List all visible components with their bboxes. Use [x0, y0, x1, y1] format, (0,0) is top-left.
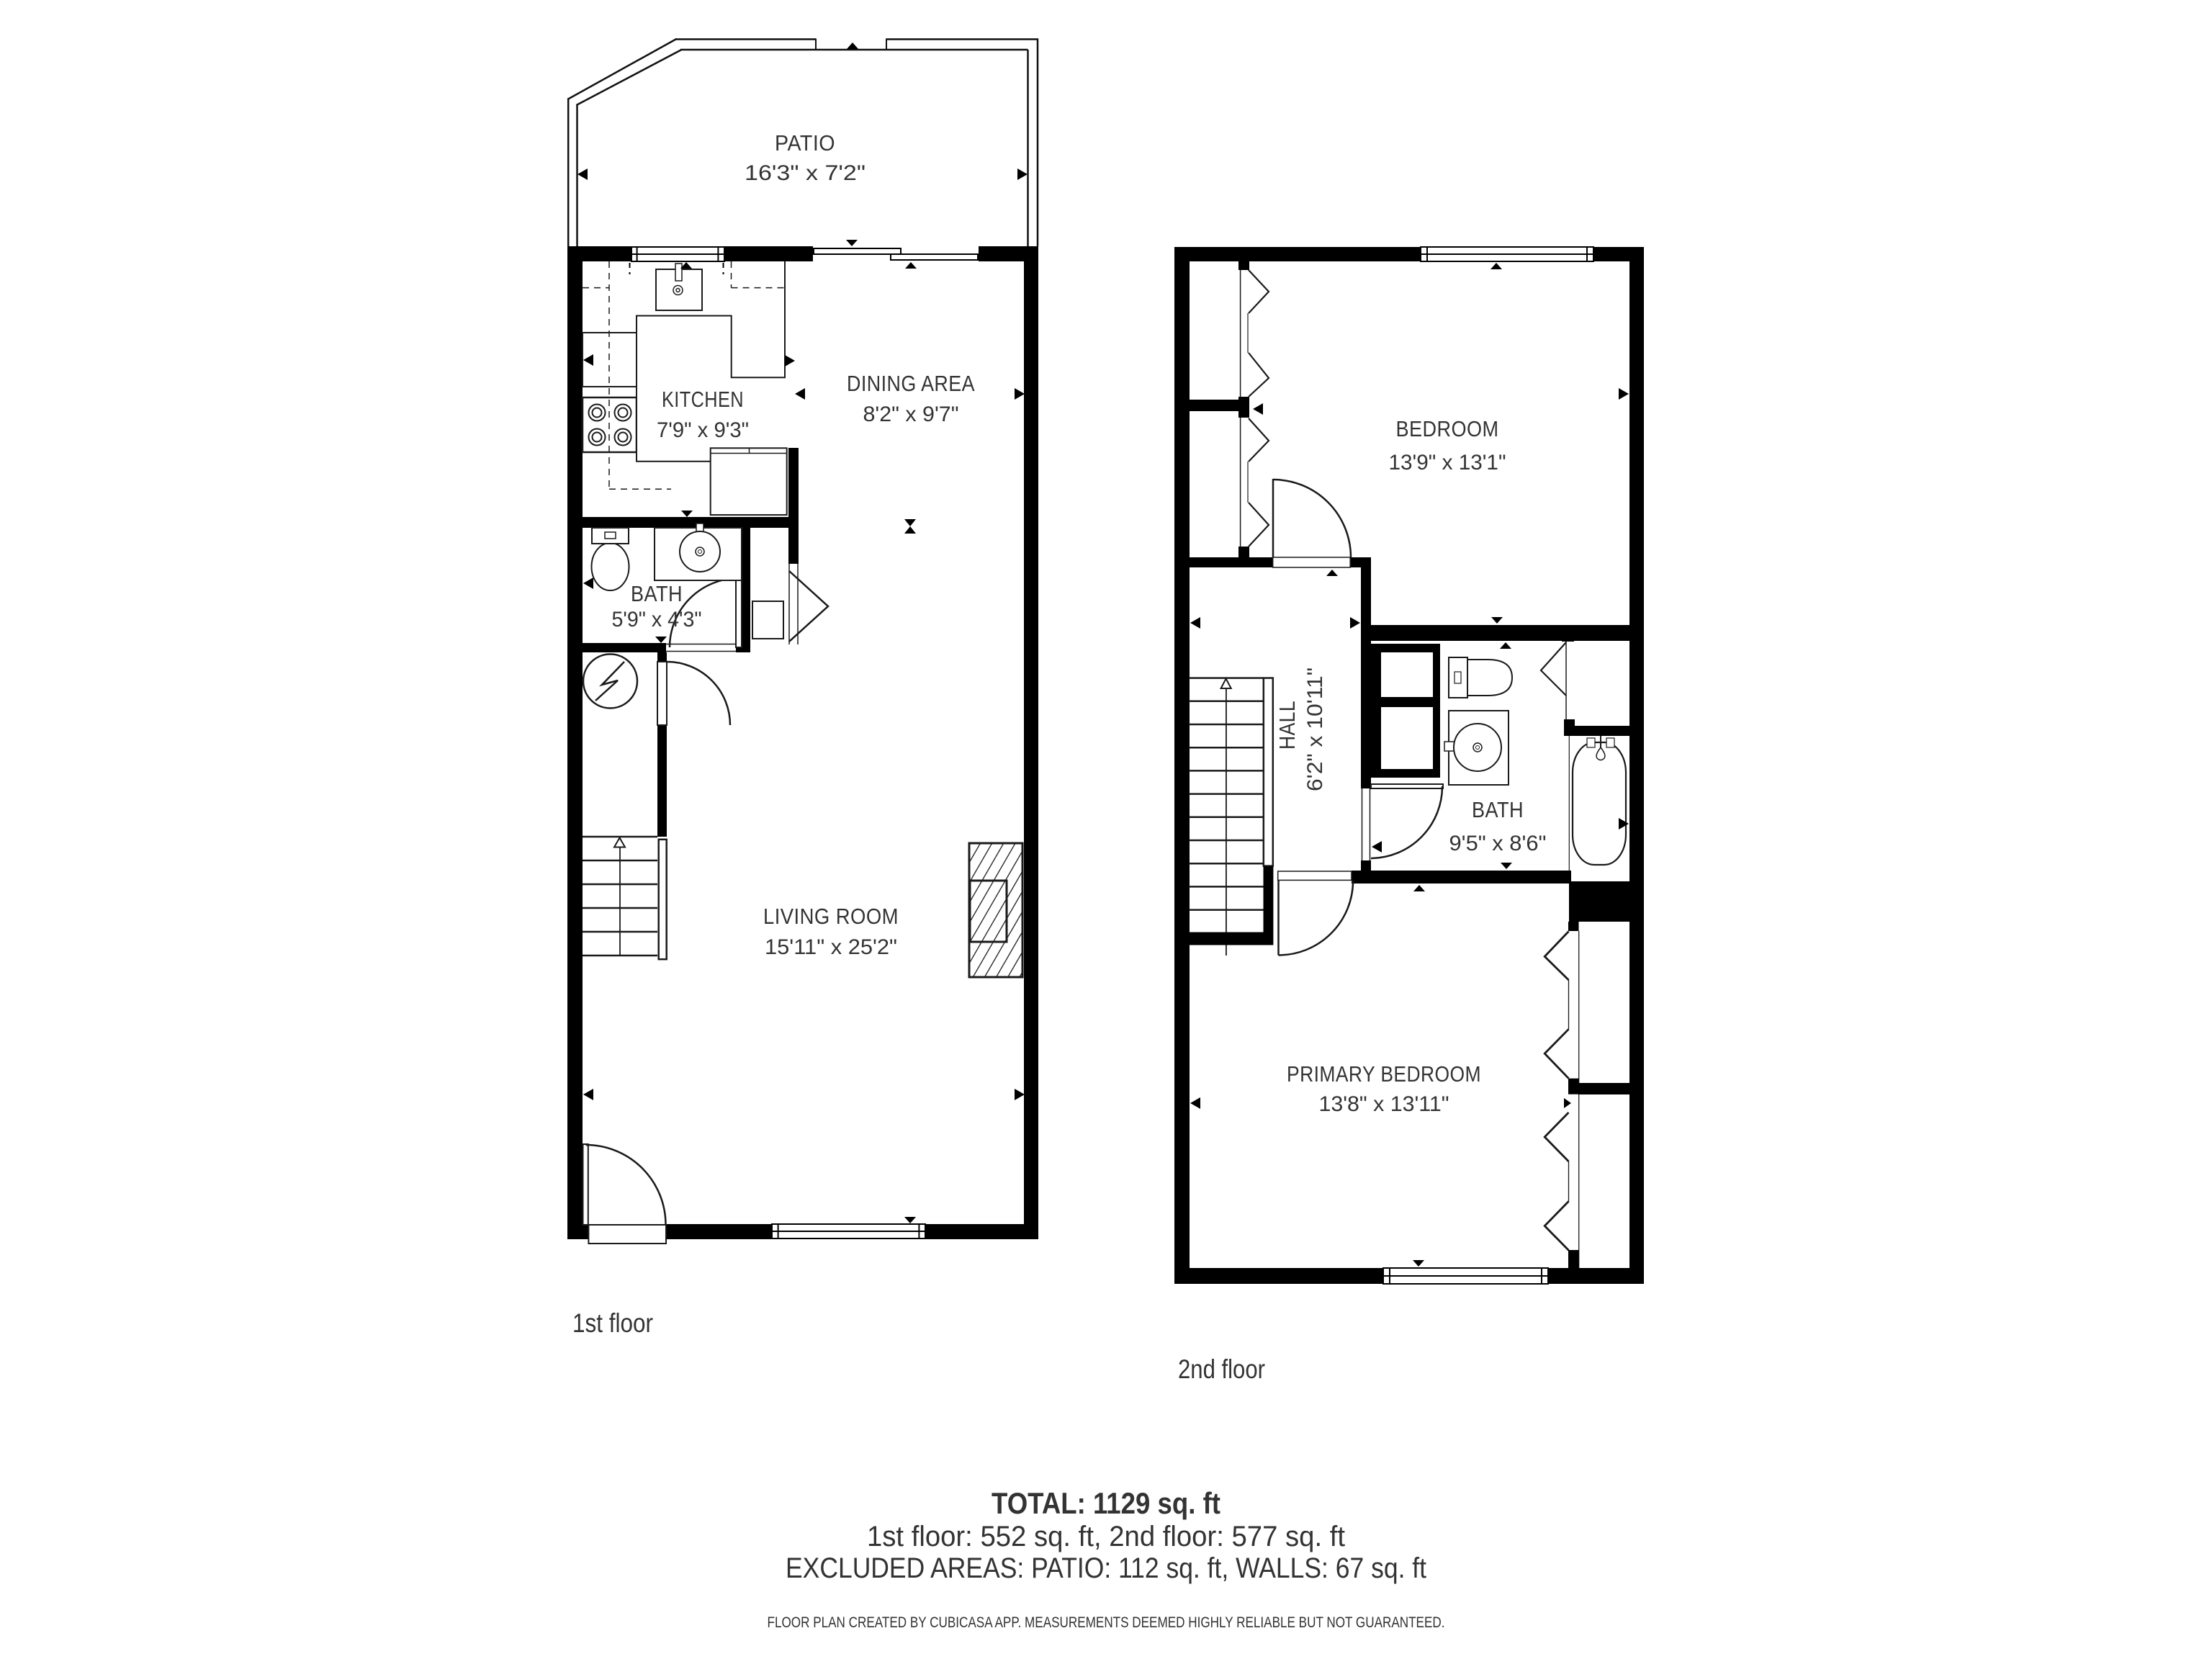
svg-text:BATH: BATH [1472, 797, 1524, 822]
svg-text:9'5" x 8'6": 9'5" x 8'6" [1449, 832, 1547, 855]
svg-text:BEDROOM: BEDROOM [1396, 416, 1499, 441]
svg-text:EXCLUDED AREAS: PATIO: 112 sq.: EXCLUDED AREAS: PATIO: 112 sq. ft, WALLS… [786, 1552, 1426, 1584]
svg-text:FLOOR PLAN CREATED BY CUBICASA: FLOOR PLAN CREATED BY CUBICASA APP. MEAS… [768, 1614, 1445, 1631]
svg-text:LIVING ROOM: LIVING ROOM [763, 904, 899, 929]
svg-text:13'8" x 13'11": 13'8" x 13'11" [1319, 1092, 1449, 1116]
svg-text:2nd floor: 2nd floor [1178, 1354, 1265, 1384]
svg-text:HALL: HALL [1274, 701, 1300, 750]
svg-text:13'9" x 13'1": 13'9" x 13'1" [1389, 451, 1506, 475]
svg-text:1st floor: 1st floor [572, 1308, 653, 1338]
svg-text:1st floor: 552 sq. ft, 2nd flo: 1st floor: 552 sq. ft, 2nd floor: 577 sq… [867, 1521, 1345, 1552]
svg-text:15'11" x 25'2": 15'11" x 25'2" [765, 935, 897, 959]
svg-text:16'3" x 7'2": 16'3" x 7'2" [745, 161, 866, 185]
svg-text:8'2" x 9'7": 8'2" x 9'7" [863, 403, 959, 426]
svg-text:PRIMARY BEDROOM: PRIMARY BEDROOM [1287, 1061, 1481, 1087]
svg-text:BATH: BATH [631, 581, 683, 606]
svg-text:PATIO: PATIO [775, 130, 835, 156]
svg-text:6'2" x 10'11": 6'2" x 10'11" [1303, 667, 1327, 791]
svg-text:5'9" x 4'3": 5'9" x 4'3" [612, 608, 702, 631]
svg-text:7'9" x 9'3": 7'9" x 9'3" [657, 418, 749, 442]
svg-text:KITCHEN: KITCHEN [662, 387, 744, 412]
svg-text:TOTAL: 1129 sq. ft: TOTAL: 1129 sq. ft [992, 1486, 1220, 1520]
svg-text:DINING AREA: DINING AREA [847, 371, 975, 396]
